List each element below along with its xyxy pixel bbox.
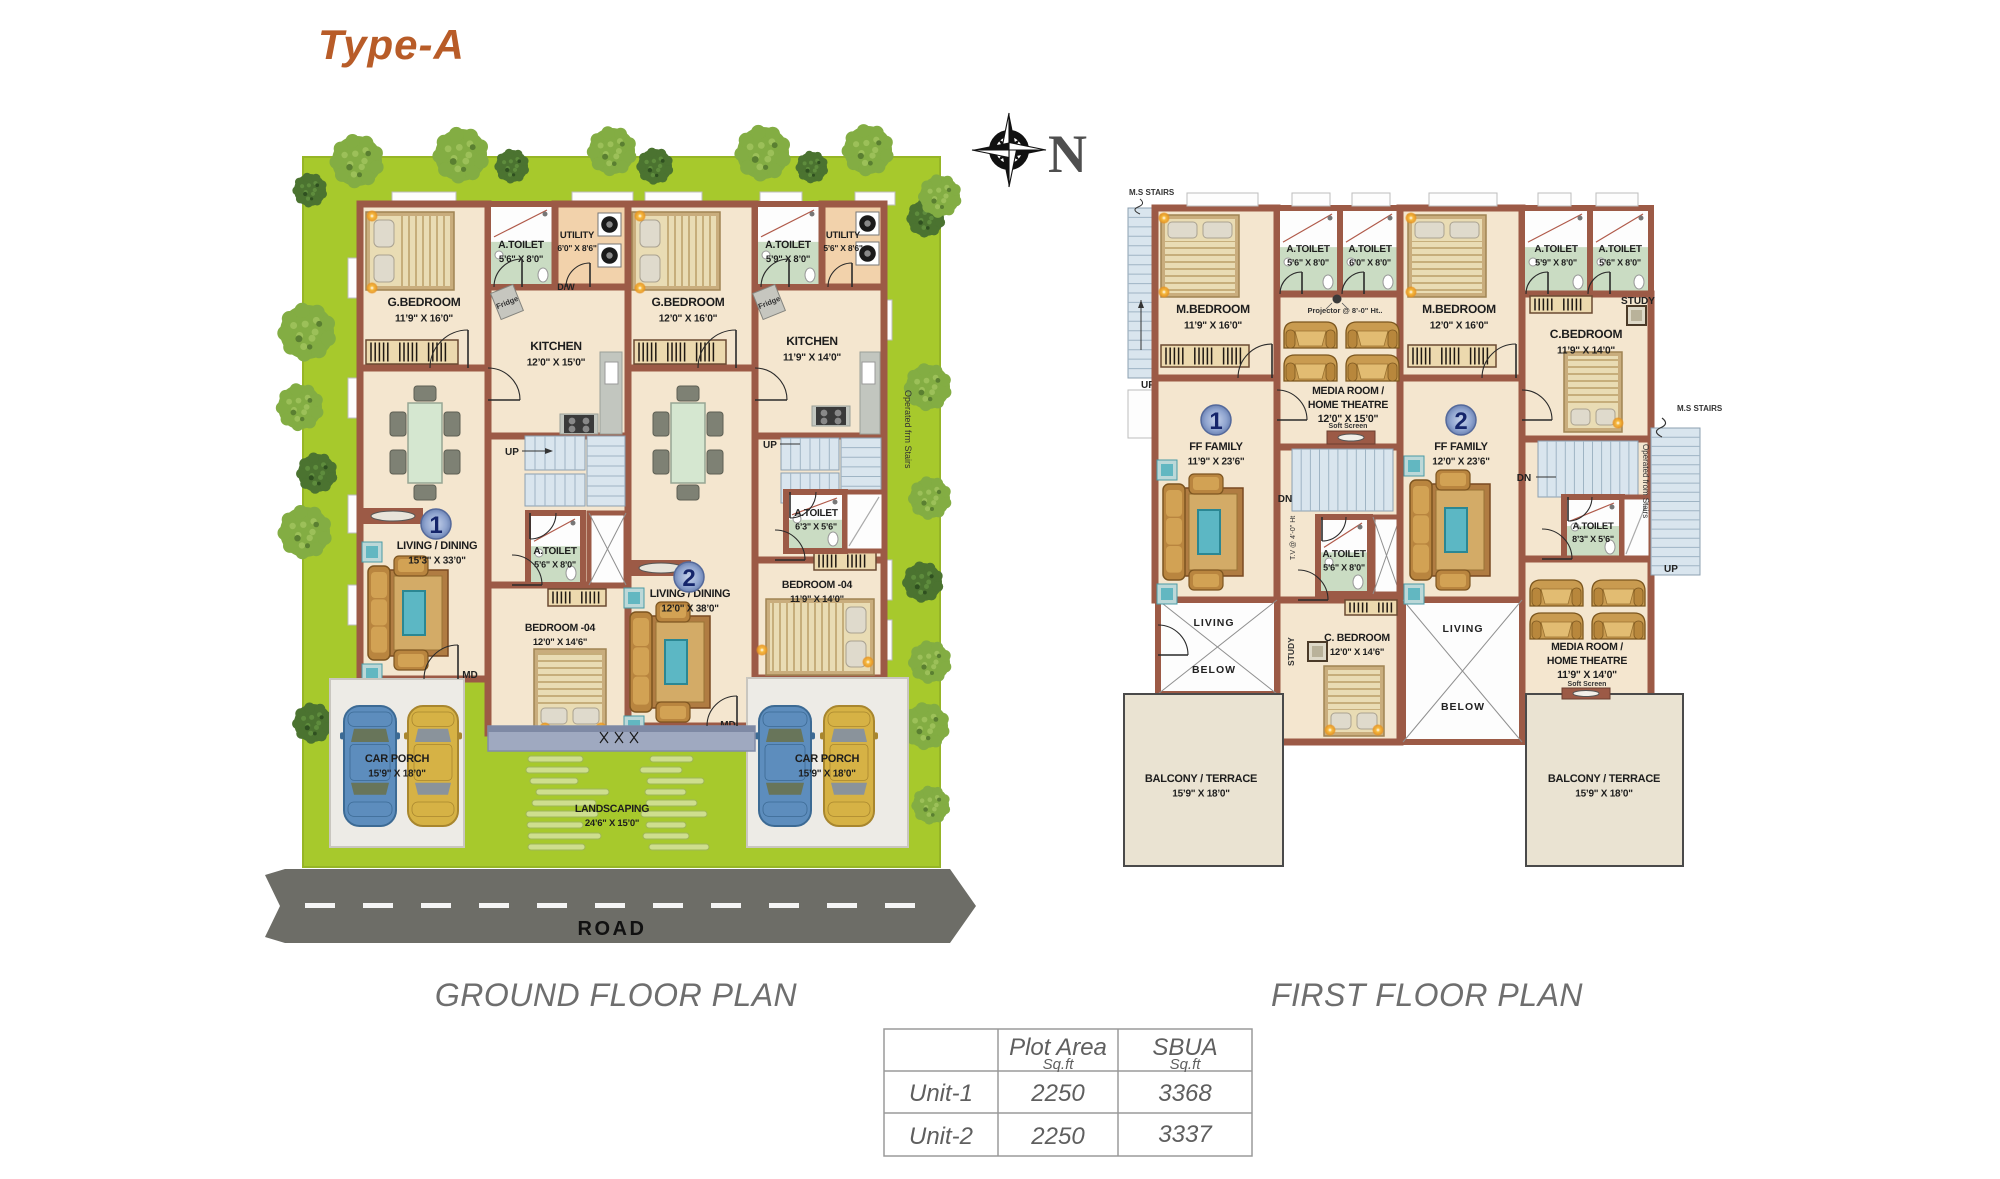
svg-text:GROUND FLOOR PLAN: GROUND FLOOR PLAN bbox=[435, 977, 798, 1013]
svg-text:C. BEDROOM: C. BEDROOM bbox=[1324, 632, 1390, 644]
svg-text:Unit-1: Unit-1 bbox=[909, 1080, 973, 1107]
svg-text:M.BEDROOM: M.BEDROOM bbox=[1422, 302, 1496, 316]
svg-text:A.TOILET: A.TOILET bbox=[1598, 244, 1642, 255]
svg-text:11’9" X 14’0": 11’9" X 14’0" bbox=[1557, 346, 1615, 357]
svg-text:A.TOILET: A.TOILET bbox=[533, 546, 577, 557]
svg-text:ROAD: ROAD bbox=[578, 918, 647, 940]
svg-text:6’3" X 5’6": 6’3" X 5’6" bbox=[795, 522, 837, 532]
svg-text:A.TOILET: A.TOILET bbox=[1322, 549, 1366, 560]
svg-text:N: N bbox=[1048, 124, 1087, 184]
svg-text:KITCHEN: KITCHEN bbox=[530, 339, 582, 353]
svg-text:BEDROOM -04: BEDROOM -04 bbox=[525, 622, 596, 634]
svg-text:12’0" X 16’0": 12’0" X 16’0" bbox=[659, 314, 718, 325]
svg-text:C.BEDROOM: C.BEDROOM bbox=[1550, 327, 1623, 341]
svg-text:G.BEDROOM: G.BEDROOM bbox=[387, 295, 460, 309]
svg-text:LIVING: LIVING bbox=[1442, 623, 1483, 635]
svg-text:12’0" X 38’0": 12’0" X 38’0" bbox=[661, 604, 719, 615]
svg-text:CAR PORCH: CAR PORCH bbox=[365, 753, 430, 765]
svg-text:A.TOILET: A.TOILET bbox=[794, 508, 838, 519]
svg-text:24’6" X 15’0": 24’6" X 15’0" bbox=[585, 818, 639, 829]
svg-text:15’9" X 18’0": 15’9" X 18’0" bbox=[368, 769, 426, 780]
svg-text:UTILITY: UTILITY bbox=[560, 230, 595, 241]
svg-text:Sq.ft: Sq.ft bbox=[1170, 1056, 1202, 1073]
svg-text:11’9" X 14’0": 11’9" X 14’0" bbox=[783, 353, 841, 364]
svg-text:Operated frm Stairs: Operated frm Stairs bbox=[903, 390, 913, 469]
svg-text:2250: 2250 bbox=[1030, 1080, 1085, 1107]
svg-text:Soft Screen: Soft Screen bbox=[1568, 681, 1607, 688]
svg-text:3368: 3368 bbox=[1158, 1080, 1212, 1107]
svg-text:6’0" X 8’0": 6’0" X 8’0" bbox=[1349, 258, 1391, 268]
svg-text:UTILITY: UTILITY bbox=[826, 230, 861, 241]
svg-text:A.TOILET: A.TOILET bbox=[1286, 244, 1330, 255]
svg-text:BEDROOM -04: BEDROOM -04 bbox=[782, 579, 853, 591]
svg-text:KITCHEN: KITCHEN bbox=[786, 334, 838, 348]
svg-text:UP: UP bbox=[505, 447, 519, 458]
svg-text:M.S STAIRS: M.S STAIRS bbox=[1677, 404, 1723, 413]
svg-text:1: 1 bbox=[429, 512, 442, 539]
svg-text:BALCONY / TERRACE: BALCONY / TERRACE bbox=[1548, 773, 1660, 785]
svg-text:Type-A: Type-A bbox=[318, 21, 465, 68]
svg-text:CAR PORCH: CAR PORCH bbox=[795, 753, 860, 765]
svg-text:15’9" X 18’0": 15’9" X 18’0" bbox=[798, 769, 856, 780]
svg-text:11’9" X 16’0": 11’9" X 16’0" bbox=[1184, 321, 1242, 332]
svg-text:UP: UP bbox=[1664, 564, 1678, 575]
svg-text:5’6" X 8’0": 5’6" X 8’0" bbox=[534, 560, 576, 570]
svg-text:T.V @ 4’-0" Ht: T.V @ 4’-0" Ht bbox=[1290, 516, 1297, 560]
svg-text:FIRST FLOOR PLAN: FIRST FLOOR PLAN bbox=[1271, 977, 1583, 1013]
svg-text:STUDY: STUDY bbox=[1621, 296, 1655, 307]
svg-text:12’0" X 14’6": 12’0" X 14’6" bbox=[533, 637, 587, 648]
svg-text:12’0" X 16’0": 12’0" X 16’0" bbox=[1430, 321, 1489, 332]
svg-text:A.TOILET: A.TOILET bbox=[1572, 521, 1614, 532]
svg-text:BELOW: BELOW bbox=[1441, 701, 1485, 713]
svg-text:15’9" X 18’0": 15’9" X 18’0" bbox=[1575, 789, 1633, 800]
svg-text:8’3" X 5’6": 8’3" X 5’6" bbox=[1572, 534, 1614, 544]
svg-text:G.BEDROOM: G.BEDROOM bbox=[651, 295, 724, 309]
svg-text:Soft Screen: Soft Screen bbox=[1329, 423, 1368, 430]
svg-text:11’9" X 23’6": 11’9" X 23’6" bbox=[1188, 457, 1245, 468]
svg-text:1: 1 bbox=[1209, 408, 1222, 435]
svg-text:12’0" X 23’6": 12’0" X 23’6" bbox=[1432, 457, 1490, 468]
svg-text:5’6" X 8’0": 5’6" X 8’0" bbox=[1323, 563, 1365, 573]
svg-text:STUDY: STUDY bbox=[1286, 637, 1296, 666]
svg-text:Unit-2: Unit-2 bbox=[909, 1123, 973, 1150]
svg-text:UP: UP bbox=[763, 440, 777, 451]
svg-text:MEDIA ROOM /: MEDIA ROOM / bbox=[1551, 641, 1623, 653]
svg-text:15’3" X 33’0": 15’3" X 33’0" bbox=[408, 556, 466, 567]
svg-text:Sq.ft: Sq.ft bbox=[1043, 1056, 1075, 1073]
svg-text:HOME THEATRE: HOME THEATRE bbox=[1547, 655, 1627, 667]
svg-text:11’9" X 14’0": 11’9" X 14’0" bbox=[1557, 669, 1617, 681]
svg-text:M.BEDROOM: M.BEDROOM bbox=[1176, 302, 1250, 316]
svg-text:MEDIA ROOM /: MEDIA ROOM / bbox=[1312, 385, 1384, 397]
svg-text:2: 2 bbox=[1454, 408, 1467, 435]
svg-text:2250: 2250 bbox=[1030, 1123, 1085, 1150]
svg-text:2: 2 bbox=[682, 565, 695, 592]
svg-text:Projector @ 8’-0" Ht..: Projector @ 8’-0" Ht.. bbox=[1307, 306, 1382, 315]
svg-text:LIVING / DINING: LIVING / DINING bbox=[397, 540, 478, 552]
svg-text:BALCONY / TERRACE: BALCONY / TERRACE bbox=[1145, 773, 1257, 785]
svg-text:12’0" X 14’6": 12’0" X 14’6" bbox=[1330, 647, 1384, 658]
svg-text:3337: 3337 bbox=[1158, 1121, 1213, 1148]
svg-text:11’9" X 16’0": 11’9" X 16’0" bbox=[395, 314, 453, 325]
svg-text:A.TOILET: A.TOILET bbox=[765, 239, 811, 251]
svg-text:DN: DN bbox=[1278, 494, 1292, 505]
svg-text:15’9" X 18’0": 15’9" X 18’0" bbox=[1172, 789, 1230, 800]
svg-text:5’6" X 8’6": 5’6" X 8’6" bbox=[823, 243, 863, 253]
svg-text:A.TOILET: A.TOILET bbox=[1348, 244, 1392, 255]
svg-text:A.TOILET: A.TOILET bbox=[1534, 244, 1578, 255]
svg-text:HOME THEATRE: HOME THEATRE bbox=[1308, 399, 1388, 411]
svg-text:6’0" X 8’6": 6’0" X 8’6" bbox=[557, 243, 597, 253]
svg-text:LIVING: LIVING bbox=[1193, 617, 1234, 629]
svg-text:LANDSCAPING: LANDSCAPING bbox=[575, 803, 649, 815]
svg-text:BELOW: BELOW bbox=[1192, 664, 1236, 676]
svg-text:Operated from Stairs: Operated from Stairs bbox=[1641, 444, 1650, 518]
svg-text:5’6" X 8’0": 5’6" X 8’0" bbox=[1599, 258, 1641, 268]
svg-text:M.S STAIRS: M.S STAIRS bbox=[1129, 188, 1175, 197]
svg-text:12’0" X 15’0": 12’0" X 15’0" bbox=[527, 358, 586, 369]
svg-text:DN: DN bbox=[1517, 473, 1531, 484]
svg-text:FF FAMILY: FF FAMILY bbox=[1189, 441, 1243, 453]
svg-text:5’6" X 8’0": 5’6" X 8’0" bbox=[1287, 258, 1329, 268]
svg-text:A.TOILET: A.TOILET bbox=[498, 239, 544, 251]
svg-text:5’9" X 8’0": 5’9" X 8’0" bbox=[1535, 258, 1577, 268]
svg-text:FF FAMILY: FF FAMILY bbox=[1434, 441, 1488, 453]
svg-text:11’9" X 14’0": 11’9" X 14’0" bbox=[790, 594, 844, 605]
